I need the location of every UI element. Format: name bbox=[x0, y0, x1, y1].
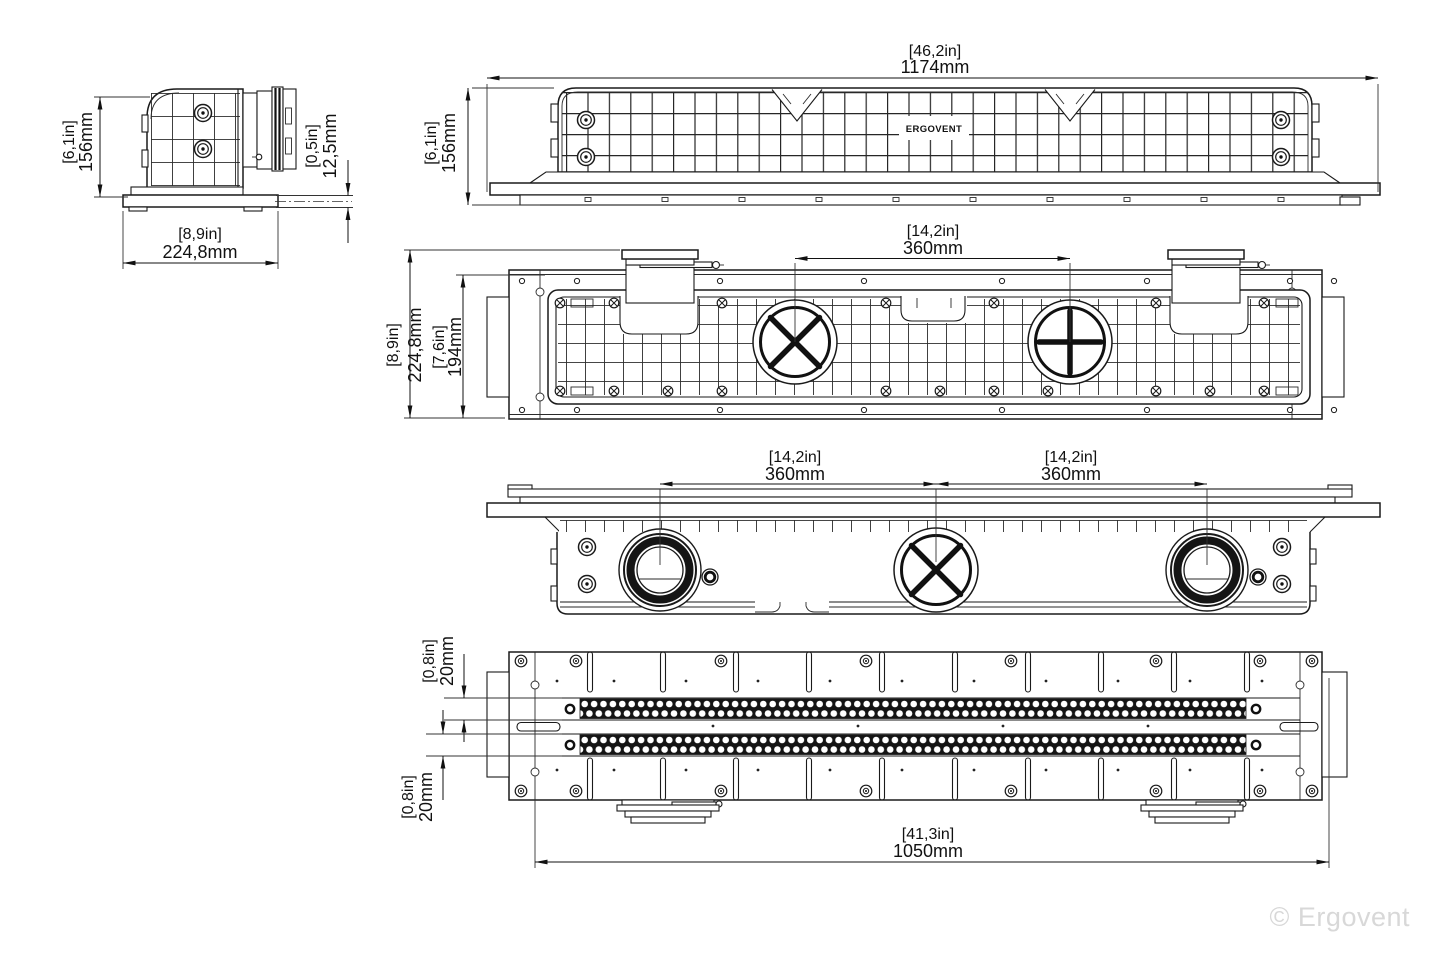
side-lip-in-label: [0,5in] bbox=[304, 124, 321, 168]
plan-center-cutout bbox=[901, 296, 967, 323]
side-depth-in-label: [8,9in] bbox=[178, 226, 222, 243]
side-damper-knob bbox=[256, 154, 262, 160]
under-grommet-left bbox=[702, 569, 718, 585]
front-screw bbox=[578, 149, 595, 166]
plan-spacing-mm-label: 360mm bbox=[903, 238, 963, 258]
under-screw bbox=[1274, 539, 1291, 556]
dim-side-height: [6,1in] 156mm bbox=[61, 97, 150, 197]
technical-drawing-canvas: [6,1in] 156mm [0,5in] 12,5mm [8,9in] 224… bbox=[0, 0, 1440, 960]
side-duct-connector bbox=[243, 87, 296, 171]
front-width-mm-label: 1174mm bbox=[901, 57, 970, 77]
under-screw bbox=[1274, 576, 1291, 593]
plan-depth-mm-label: 224,8mm bbox=[405, 307, 425, 382]
side-screw-top bbox=[195, 105, 212, 122]
side-tab-lower bbox=[142, 150, 148, 167]
bottom-slot-bottom-in-label: [0,8in] bbox=[400, 775, 417, 819]
side-tab-upper bbox=[142, 115, 148, 132]
bottom-duct-connector-left bbox=[617, 800, 722, 823]
under-screw bbox=[579, 576, 596, 593]
side-height-mm-label: 156mm bbox=[76, 112, 96, 172]
bottom-slot-bottom-mm-label: 20mm bbox=[416, 772, 436, 822]
side-body bbox=[142, 89, 243, 188]
view-bottom: [0,8in] 20mm [0,8in] 20mm [41,3in] 1050m… bbox=[400, 636, 1347, 868]
front-screw bbox=[1273, 112, 1290, 129]
plan-end-plate-left bbox=[487, 297, 509, 397]
under-bottom-notch bbox=[755, 600, 829, 612]
front-screw bbox=[1273, 149, 1290, 166]
under-grommet-right bbox=[1250, 569, 1266, 585]
front-base bbox=[490, 172, 1380, 205]
side-lip-mm-label: 12,5mm bbox=[320, 113, 340, 178]
view-plan: [14,2in] 360mm [8,9in] 224,8mm [7,6in] 1… bbox=[385, 223, 1344, 419]
plan-depth-in-label: [8,9in] bbox=[385, 323, 402, 367]
under-spacing-left-mm-label: 360mm bbox=[765, 464, 825, 484]
side-depth-mm-label: 224,8mm bbox=[162, 242, 237, 262]
bottom-length-mm-label: 1050mm bbox=[893, 841, 963, 861]
bottom-panel bbox=[509, 652, 1322, 800]
side-base-plate bbox=[123, 187, 278, 211]
front-screw bbox=[578, 112, 595, 129]
brand-logo-text: ERGOVENT bbox=[906, 124, 963, 135]
copyright-watermark: © Ergovent bbox=[1270, 902, 1410, 932]
view-front: ERGOVENT [ bbox=[423, 43, 1380, 205]
plan-end-plate-right bbox=[1322, 297, 1344, 397]
bottom-duct-connector-right bbox=[1141, 800, 1246, 823]
under-body bbox=[551, 518, 1316, 614]
view-underside: [14,2in] 360mm [14,2in] 360mm bbox=[487, 449, 1380, 614]
bottom-protrusion-left bbox=[487, 672, 509, 777]
front-grille: ERGOVENT bbox=[551, 88, 1319, 172]
under-screw bbox=[579, 539, 596, 556]
bottom-protrusion-right bbox=[1322, 672, 1347, 777]
bottom-slot-top-in-label: [0,8in] bbox=[421, 639, 438, 683]
plan-inner-mm-label: 194mm bbox=[445, 317, 465, 377]
front-height-mm-label: 156mm bbox=[439, 113, 459, 173]
plan-grille-assembly bbox=[548, 290, 1310, 404]
bottom-slot-top-mm-label: 20mm bbox=[437, 636, 457, 686]
front-height-in-label: [6,1in] bbox=[423, 121, 440, 165]
view-side: [6,1in] 156mm [0,5in] 12,5mm [8,9in] 224… bbox=[61, 87, 353, 269]
bottom-perforated-strip-bottom bbox=[580, 735, 1246, 755]
dim-side-depth: [8,9in] 224,8mm bbox=[123, 211, 278, 269]
under-spacing-right-mm-label: 360mm bbox=[1041, 464, 1101, 484]
side-screw-bottom bbox=[195, 141, 212, 158]
bottom-perforated-strip-top bbox=[580, 699, 1246, 719]
